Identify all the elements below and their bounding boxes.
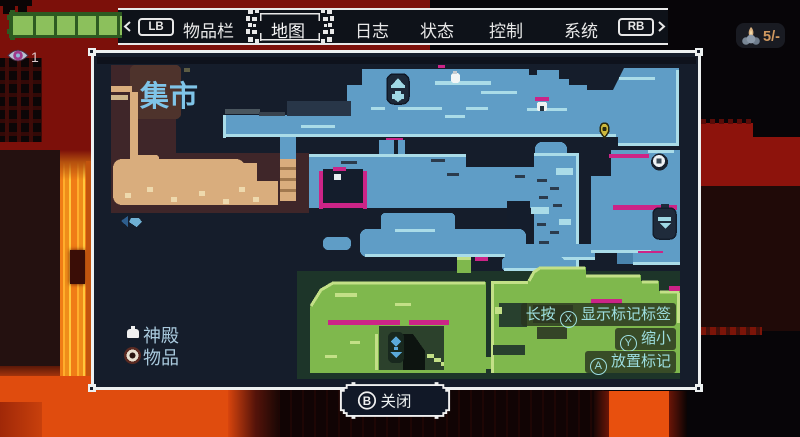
svg-text:B: B xyxy=(363,396,371,408)
svg-text:关闭: 关闭 xyxy=(381,392,412,410)
